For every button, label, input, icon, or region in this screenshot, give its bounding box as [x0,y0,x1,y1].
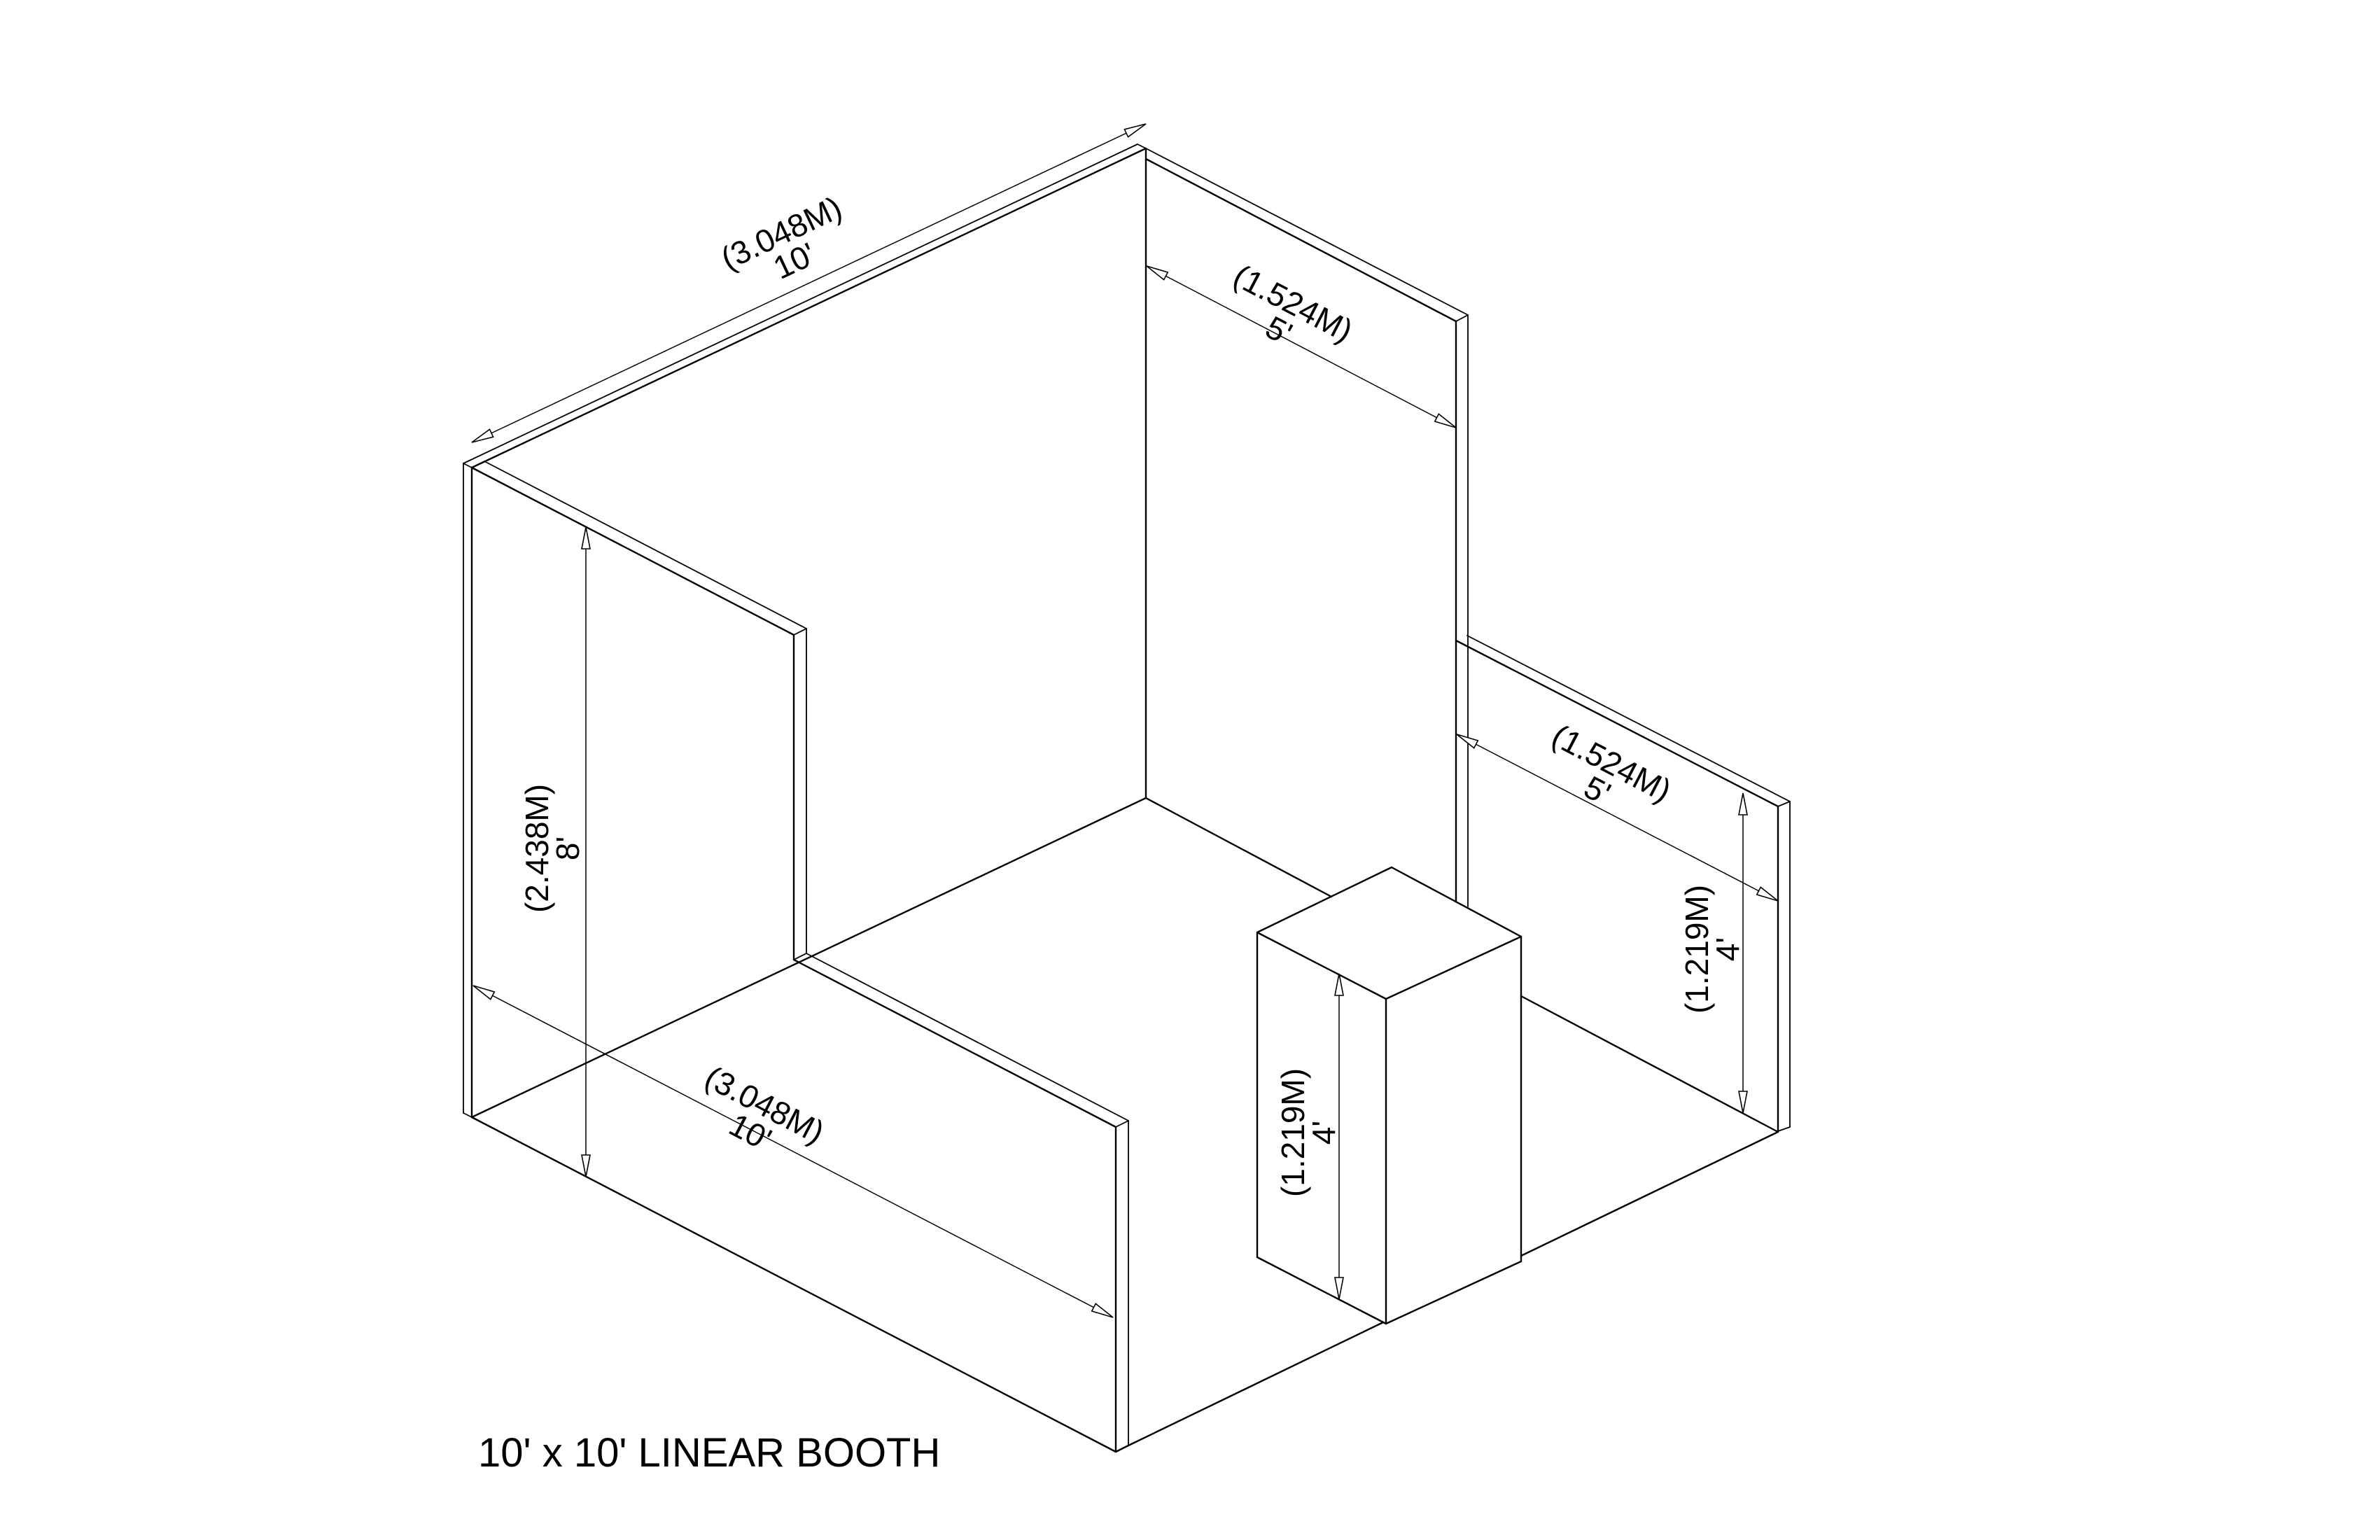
dim-back-wall-width: (3.048M) 10' [472,124,1146,442]
dim-pedestal-height: (1.219M) 4' [1275,974,1342,1299]
right-side-wall-front [1456,636,1790,1131]
dim-front-sidewall-height: (1.219M) 4' [1679,793,1746,1113]
dim-label-metric: (1.524M) [1228,257,1359,349]
dim-sidewall-total-depth: (3.048M) 10' [473,986,1113,1317]
dim-label-imperial: 4' [1305,1121,1342,1144]
dim-label-metric: (1.524M) [1546,717,1677,808]
dim-front-sidewall-length: (1.524M) 5' [1457,717,1778,901]
back-wall [463,144,1146,1117]
linear-booth-line-drawing: (3.048M) 10' (1.524M) 5' (2.438M) 8' (3.… [0,0,2380,1540]
dim-label-imperial: 8' [549,836,586,860]
dim-rear-sidewall-length: (1.524M) 5' [1147,257,1456,428]
left-side-wall [472,461,1128,1452]
booth-diagram-page: (3.048M) 10' (1.524M) 5' (2.438M) 8' (3.… [0,0,2380,1540]
dim-label-imperial: 4' [1709,937,1746,961]
right-side-wall-rear [1146,148,1468,906]
floor [472,996,1778,1452]
diagram-title: 10' x 10' LINEAR BOOTH [478,1430,940,1476]
